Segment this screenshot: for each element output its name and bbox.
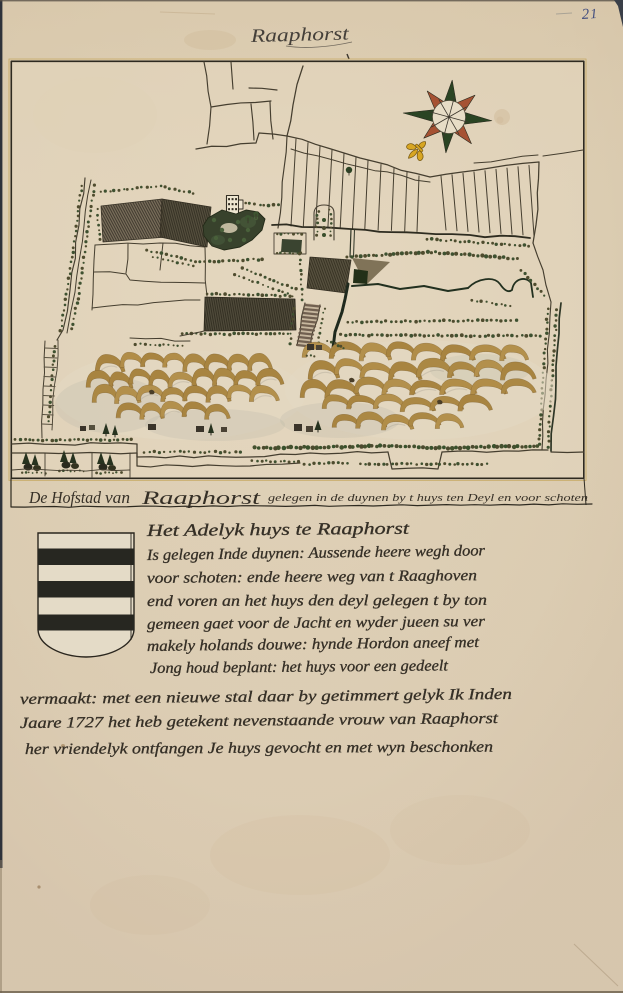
svg-text:21: 21 — [581, 6, 598, 23]
svg-text:end voren an het huys den deyl: end voren an het huys den deyl gelegen t… — [147, 592, 487, 610]
svg-text:De Hofstad: De Hofstad — [28, 488, 102, 507]
svg-text:Raaphorst: Raaphorst — [141, 488, 262, 509]
svg-text:her vriendelyk ontfangen Je hu: her vriendelyk ontfangen Je huys gevocht… — [25, 739, 493, 758]
svg-text:gelegen in de duynen by t huys: gelegen in de duynen by t huys ten Deyl … — [268, 493, 588, 504]
svg-text:van: van — [105, 488, 130, 507]
svg-text:voor schoten: ende heere weg v: voor schoten: ende heere weg van t Raagh… — [147, 567, 477, 587]
svg-text:Raaphorst: Raaphorst — [249, 23, 350, 47]
svg-text:gemeen gaet voor de Jacht en w: gemeen gaet voor de Jacht en wyder jueen… — [147, 613, 486, 633]
svg-text:Jong houd beplant: het huys vo: Jong houd beplant: het huys voor een ged… — [150, 657, 449, 677]
svg-text:Het Adelyk huys te Raaphorst: Het Adelyk huys te Raaphorst — [146, 519, 411, 540]
